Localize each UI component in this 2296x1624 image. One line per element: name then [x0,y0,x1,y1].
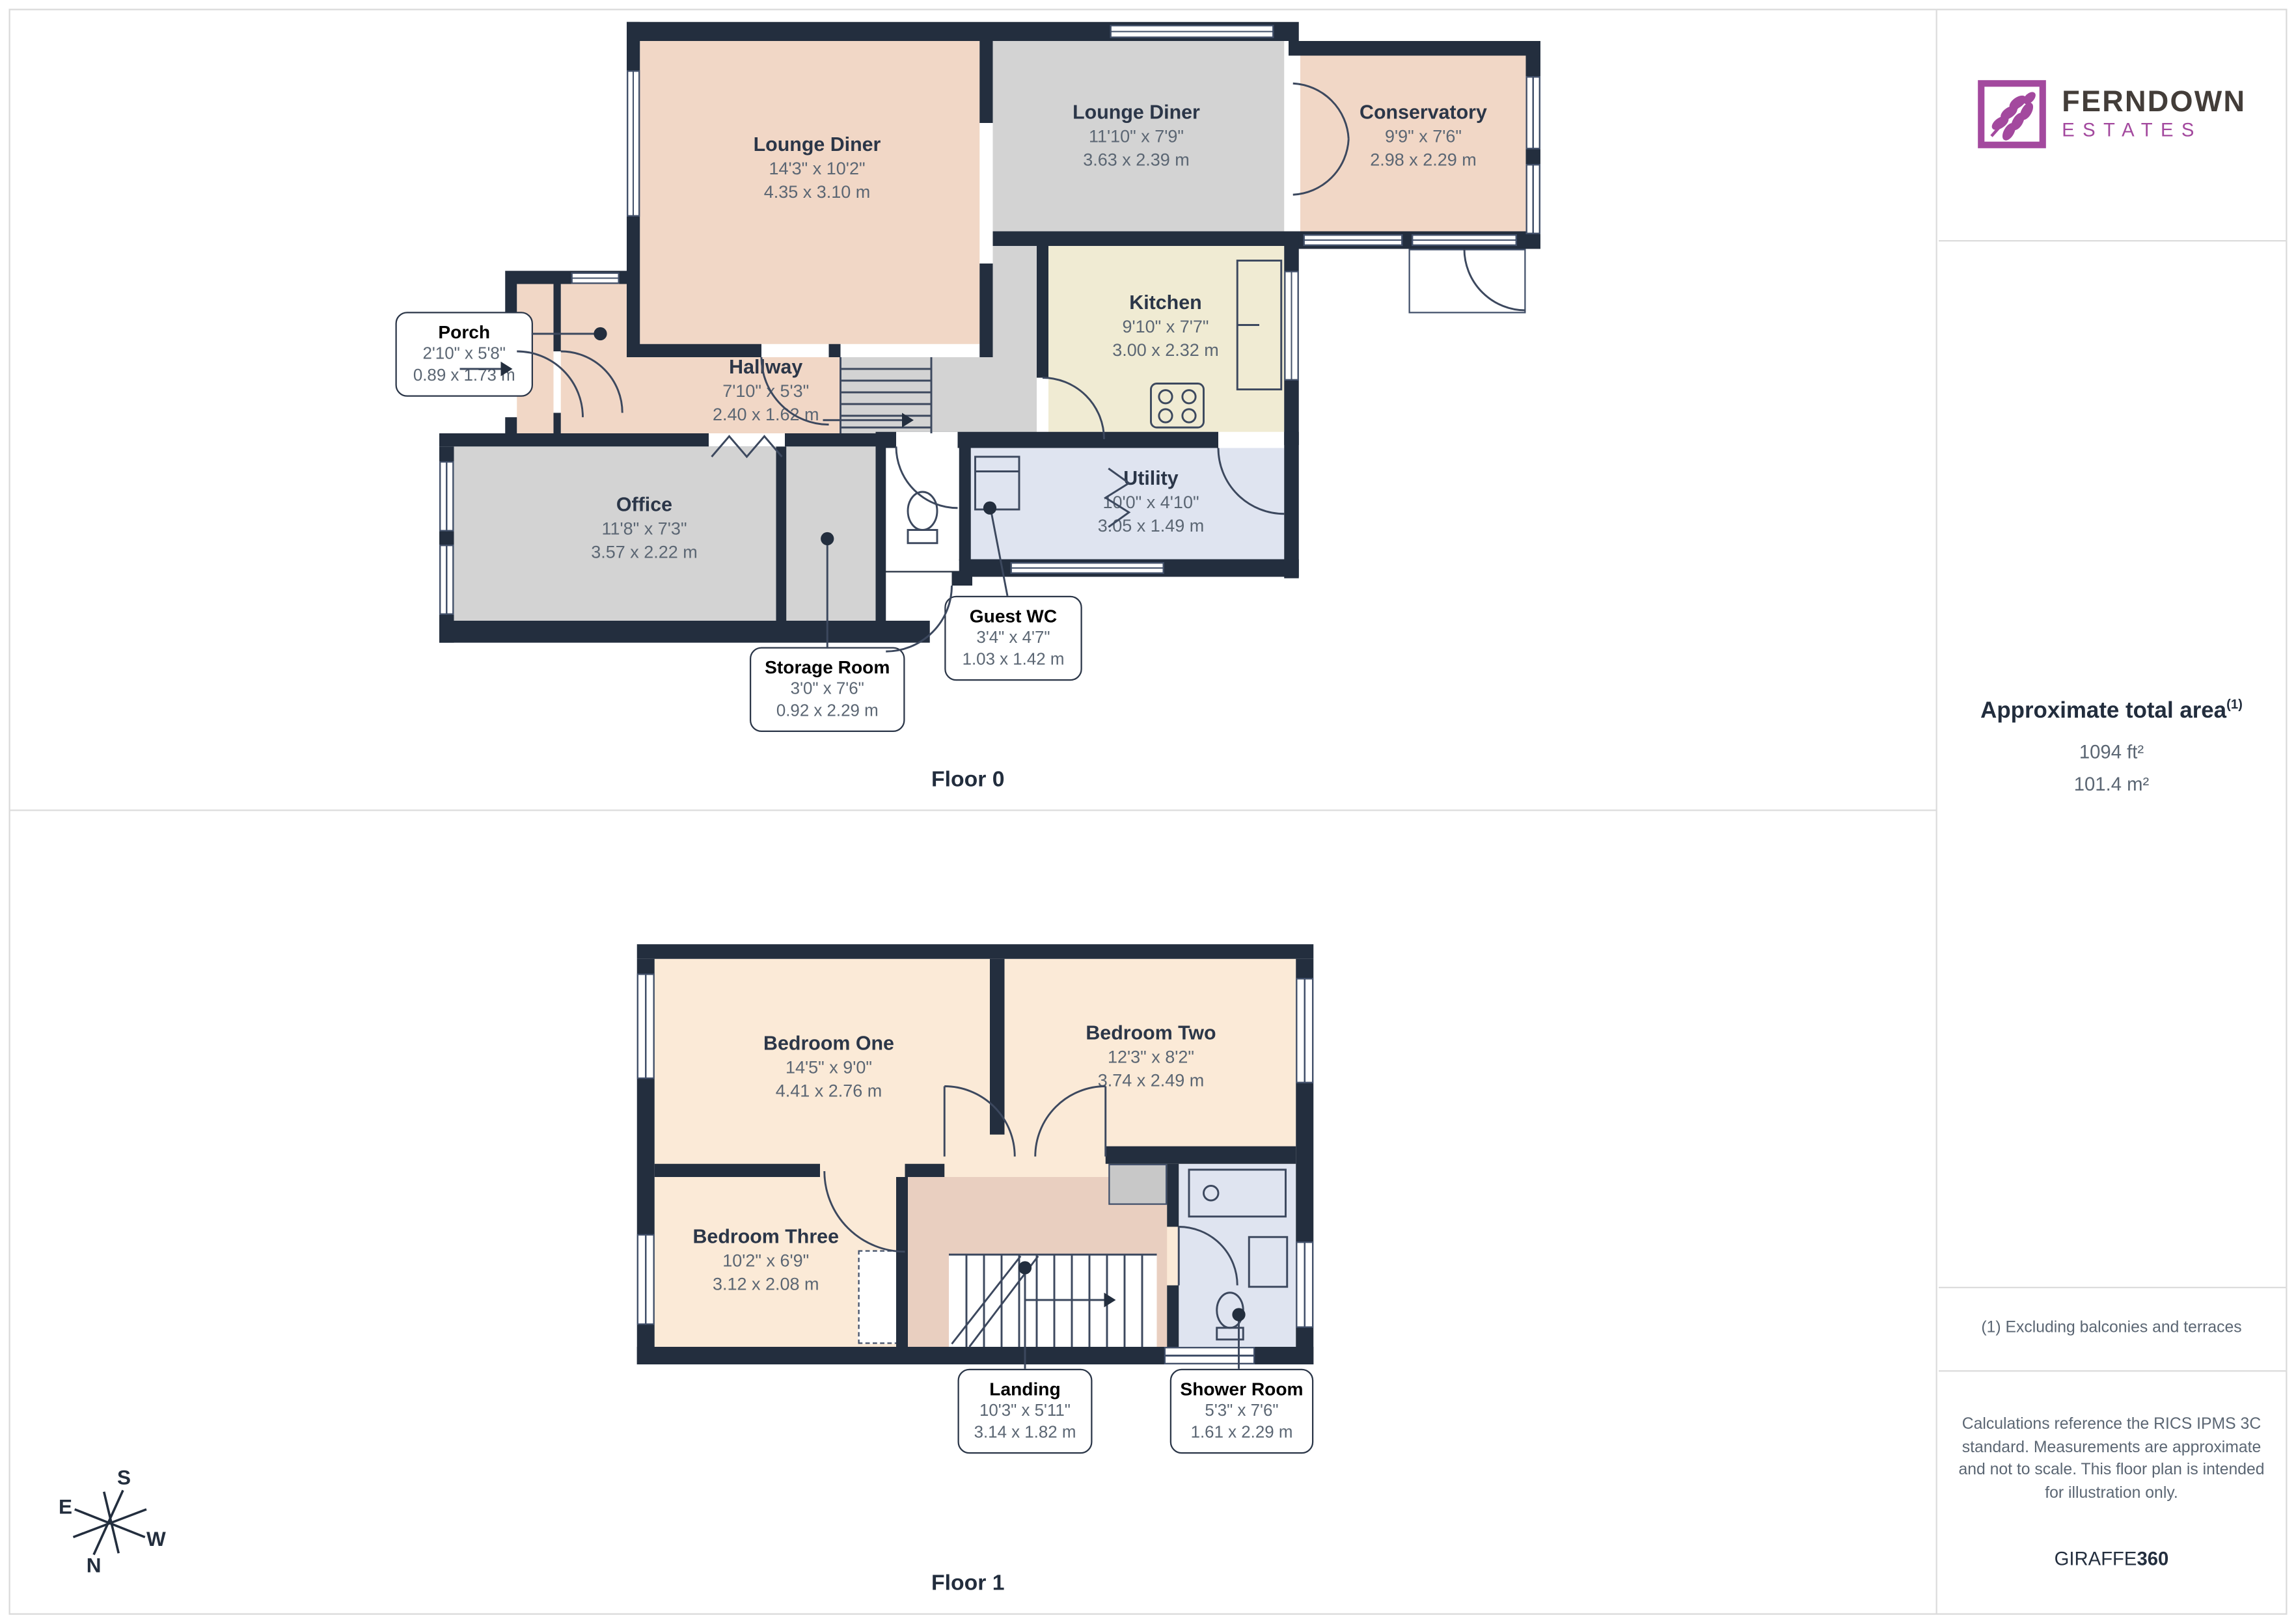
window [1164,1347,1255,1364]
room-name: Bedroom Three [656,1224,876,1249]
credit-suffix: 360 [2137,1547,2168,1569]
door-opening [886,573,951,586]
room-name: Landing [965,1377,1086,1401]
total-area-title-row: Approximate total area(1) [1936,697,2288,725]
wall [979,41,992,123]
tag-landing: Landing 10'3" x 5'11" 3.14 x 1.82 m [958,1369,1093,1454]
total-area-note-marker: (1) [2226,697,2243,712]
room-label-bedroom-one: Bedroom One 14'5" x 9'0" 4.41 x 2.76 m [719,1031,939,1102]
room-name: Kitchen [1056,290,1276,315]
room-name: Office [534,492,754,517]
room-dim-imperial: 12'3" x 8'2" [1041,1046,1261,1069]
agency-logo: FERNDOWN ESTATES [1936,79,2288,150]
door-opening [709,433,785,446]
room-guest-wc [886,446,959,571]
room-dim-imperial: 10'2" x 6'9" [656,1249,876,1272]
window [439,545,454,615]
room-dim-metric: 1.03 x 1.42 m [952,650,1075,672]
room-dim-metric: 3.63 x 2.39 m [1026,148,1246,171]
wall [959,446,971,561]
room-hallway-upper [561,284,627,434]
stairwell [949,1254,1157,1347]
room-dim-imperial: 2'10" x 5'8" [403,344,526,366]
wall [1037,246,1048,378]
sidebar-section-divider [1939,1370,2288,1372]
window [1296,1241,1313,1328]
room-label-bedroom-three: Bedroom Three 10'2" x 6'9" 3.12 x 2.08 m [656,1224,876,1295]
tag-guest-wc: Guest WC 3'4" x 4'7" 1.03 x 1.42 m [944,596,1082,681]
room-name: Guest WC [952,604,1075,628]
wall [505,417,517,433]
room-name: Conservatory [1313,100,1533,124]
agency-name-primary: FERNDOWN [2062,87,2246,119]
sidebar: FERNDOWN ESTATES Approximate total area(… [1936,9,2288,1615]
window [637,1234,655,1325]
room-label-hallway: Hallway 7'10" x 5'3" 2.40 x 1.62 m [656,355,876,426]
room-dim-imperial: 14'3" x 10'2" [707,157,927,180]
wall [439,621,930,643]
room-name: Shower Room [1177,1377,1306,1401]
window [1304,234,1403,246]
window [1526,164,1541,234]
room-dim-metric: 3.00 x 2.32 m [1056,338,1276,362]
door-opening [896,432,958,448]
room-dim-metric: 2.98 x 2.29 m [1313,148,1533,171]
room-name: Bedroom One [719,1031,939,1055]
room-dim-imperial: 9'9" x 7'6" [1313,124,1533,148]
window [1110,25,1274,38]
wall [896,1177,908,1350]
room-dim-imperial: 11'10" x 7'9" [1026,124,1246,148]
total-area-block: Approximate total area(1) 1094 ft² 101.4… [1936,697,2288,801]
room-label-office: Office 11'8" x 7'3" 3.57 x 2.22 m [534,492,754,563]
room-dim-imperial: 10'0" x 4'10" [1041,491,1261,514]
room-dim-imperial: 3'0" x 7'6" [757,679,897,701]
window [637,973,655,1079]
room-dim-imperial: 11'8" x 7'3" [534,517,754,540]
giraffe360-credit: GIRAFFE360 [1936,1547,2288,1569]
room-name: Lounge Diner [707,132,927,157]
wall [439,433,937,446]
room-label-lounge-diner-2: Lounge Diner 11'10" x 7'9" 3.63 x 2.39 m [1026,100,1246,171]
exterior-step [1409,249,1526,314]
wall [776,446,787,621]
room-dim-imperial: 14'5" x 9'0" [719,1055,939,1079]
room-dim-metric: 3.74 x 2.49 m [1041,1069,1261,1092]
room-dim-metric: 3.57 x 2.22 m [534,540,754,563]
total-area-metric: 101.4 m² [1936,769,2288,802]
room-dim-metric: 3.05 x 1.49 m [1041,514,1261,537]
room-name: Lounge Diner [1026,100,1246,124]
wall [1106,1146,1296,1164]
room-dim-imperial: 3'4" x 4'7" [952,628,1075,650]
room-name: Storage Room [757,656,897,679]
room-dim-metric: 3.12 x 2.08 m [656,1272,876,1295]
wall [905,1164,945,1177]
agency-name: FERNDOWN ESTATES [2062,87,2246,142]
room-dim-metric: 4.35 x 3.10 m [707,180,927,204]
room-dim-metric: 2.40 x 1.62 m [656,403,876,426]
room-name: Utility [1041,466,1261,491]
window [1296,978,1313,1083]
room-label-lounge-diner-1: Lounge Diner 14'3" x 10'2" 4.35 x 3.10 m [707,132,927,204]
wall [993,232,1299,247]
total-area-title: Approximate total area [1980,699,2226,724]
room-dim-imperial: 10'3" x 5'11" [965,1401,1086,1423]
area-footnote: (1) Excluding balconies and terraces [1950,1319,2273,1336]
agency-name-secondary: ESTATES [2062,118,2246,142]
room-dim-imperial: 9'10" x 7'7" [1056,315,1276,338]
total-area-imperial: 1094 ft² [1936,737,2288,769]
sidebar-section-divider [1939,240,2288,241]
room-label-conservatory: Conservatory 9'9" x 7'6" 2.98 x 2.29 m [1313,100,1533,171]
window [1011,562,1164,574]
section-divider [10,809,1936,811]
room-label-bedroom-two: Bedroom Two 12'3" x 8'2" 3.74 x 2.49 m [1041,1020,1261,1092]
wall [1289,41,1540,56]
room-label-kitchen: Kitchen 9'10" x 7'7" 3.00 x 2.32 m [1056,290,1276,362]
wall [655,1164,820,1177]
room-dim-imperial: 5'3" x 7'6" [1177,1401,1306,1423]
wall [554,413,561,434]
window [1284,271,1299,381]
room-dim-imperial: 7'10" x 5'3" [656,379,876,403]
room-dim-metric: 3.14 x 1.82 m [965,1423,1086,1445]
fern-leaf-icon [1977,79,2047,150]
wall [1284,432,1299,578]
wall [1167,1286,1179,1350]
tag-storage-room: Storage Room 3'0" x 7'6" 0.92 x 2.29 m [750,647,905,733]
tag-shower-room: Shower Room 5'3" x 7'6" 1.61 x 2.29 m [1170,1369,1314,1454]
room-storage [786,446,875,621]
room-shower [1179,1164,1296,1347]
window [571,273,620,284]
floor0-label: Floor 0 [0,767,1936,792]
room-dim-metric: 0.89 x 1.73 m [403,366,526,388]
wall [876,446,886,621]
wall [637,944,1314,959]
credit-prefix: GIRAFFE [2055,1547,2137,1569]
wall [990,959,1005,1135]
window [1412,234,1517,246]
room-dim-metric: 4.41 x 2.76 m [719,1079,939,1102]
disclaimer-text: Calculations reference the RICS IPMS 3C … [1958,1414,2265,1506]
room-name: Porch [403,321,526,344]
airing-cupboard [1108,1164,1167,1205]
window [627,70,640,217]
room-name: Hallway [656,355,876,379]
floor1-label: Floor 1 [0,1571,1936,1595]
room-dim-metric: 0.92 x 2.29 m [757,701,897,724]
window [439,461,454,532]
wall [1167,1164,1179,1227]
floorplan-page: Lounge Diner 14'3" x 10'2" 4.35 x 3.10 m… [0,0,2296,1624]
tag-porch: Porch 2'10" x 5'8" 0.89 x 1.73 m [396,312,534,397]
sidebar-section-divider [1939,1287,2288,1288]
room-label-utility: Utility 10'0" x 4'10" 3.05 x 1.49 m [1041,466,1261,537]
wall [554,284,561,352]
room-dim-metric: 1.61 x 2.29 m [1177,1423,1306,1445]
room-name: Bedroom Two [1041,1020,1261,1045]
wall [979,264,992,357]
